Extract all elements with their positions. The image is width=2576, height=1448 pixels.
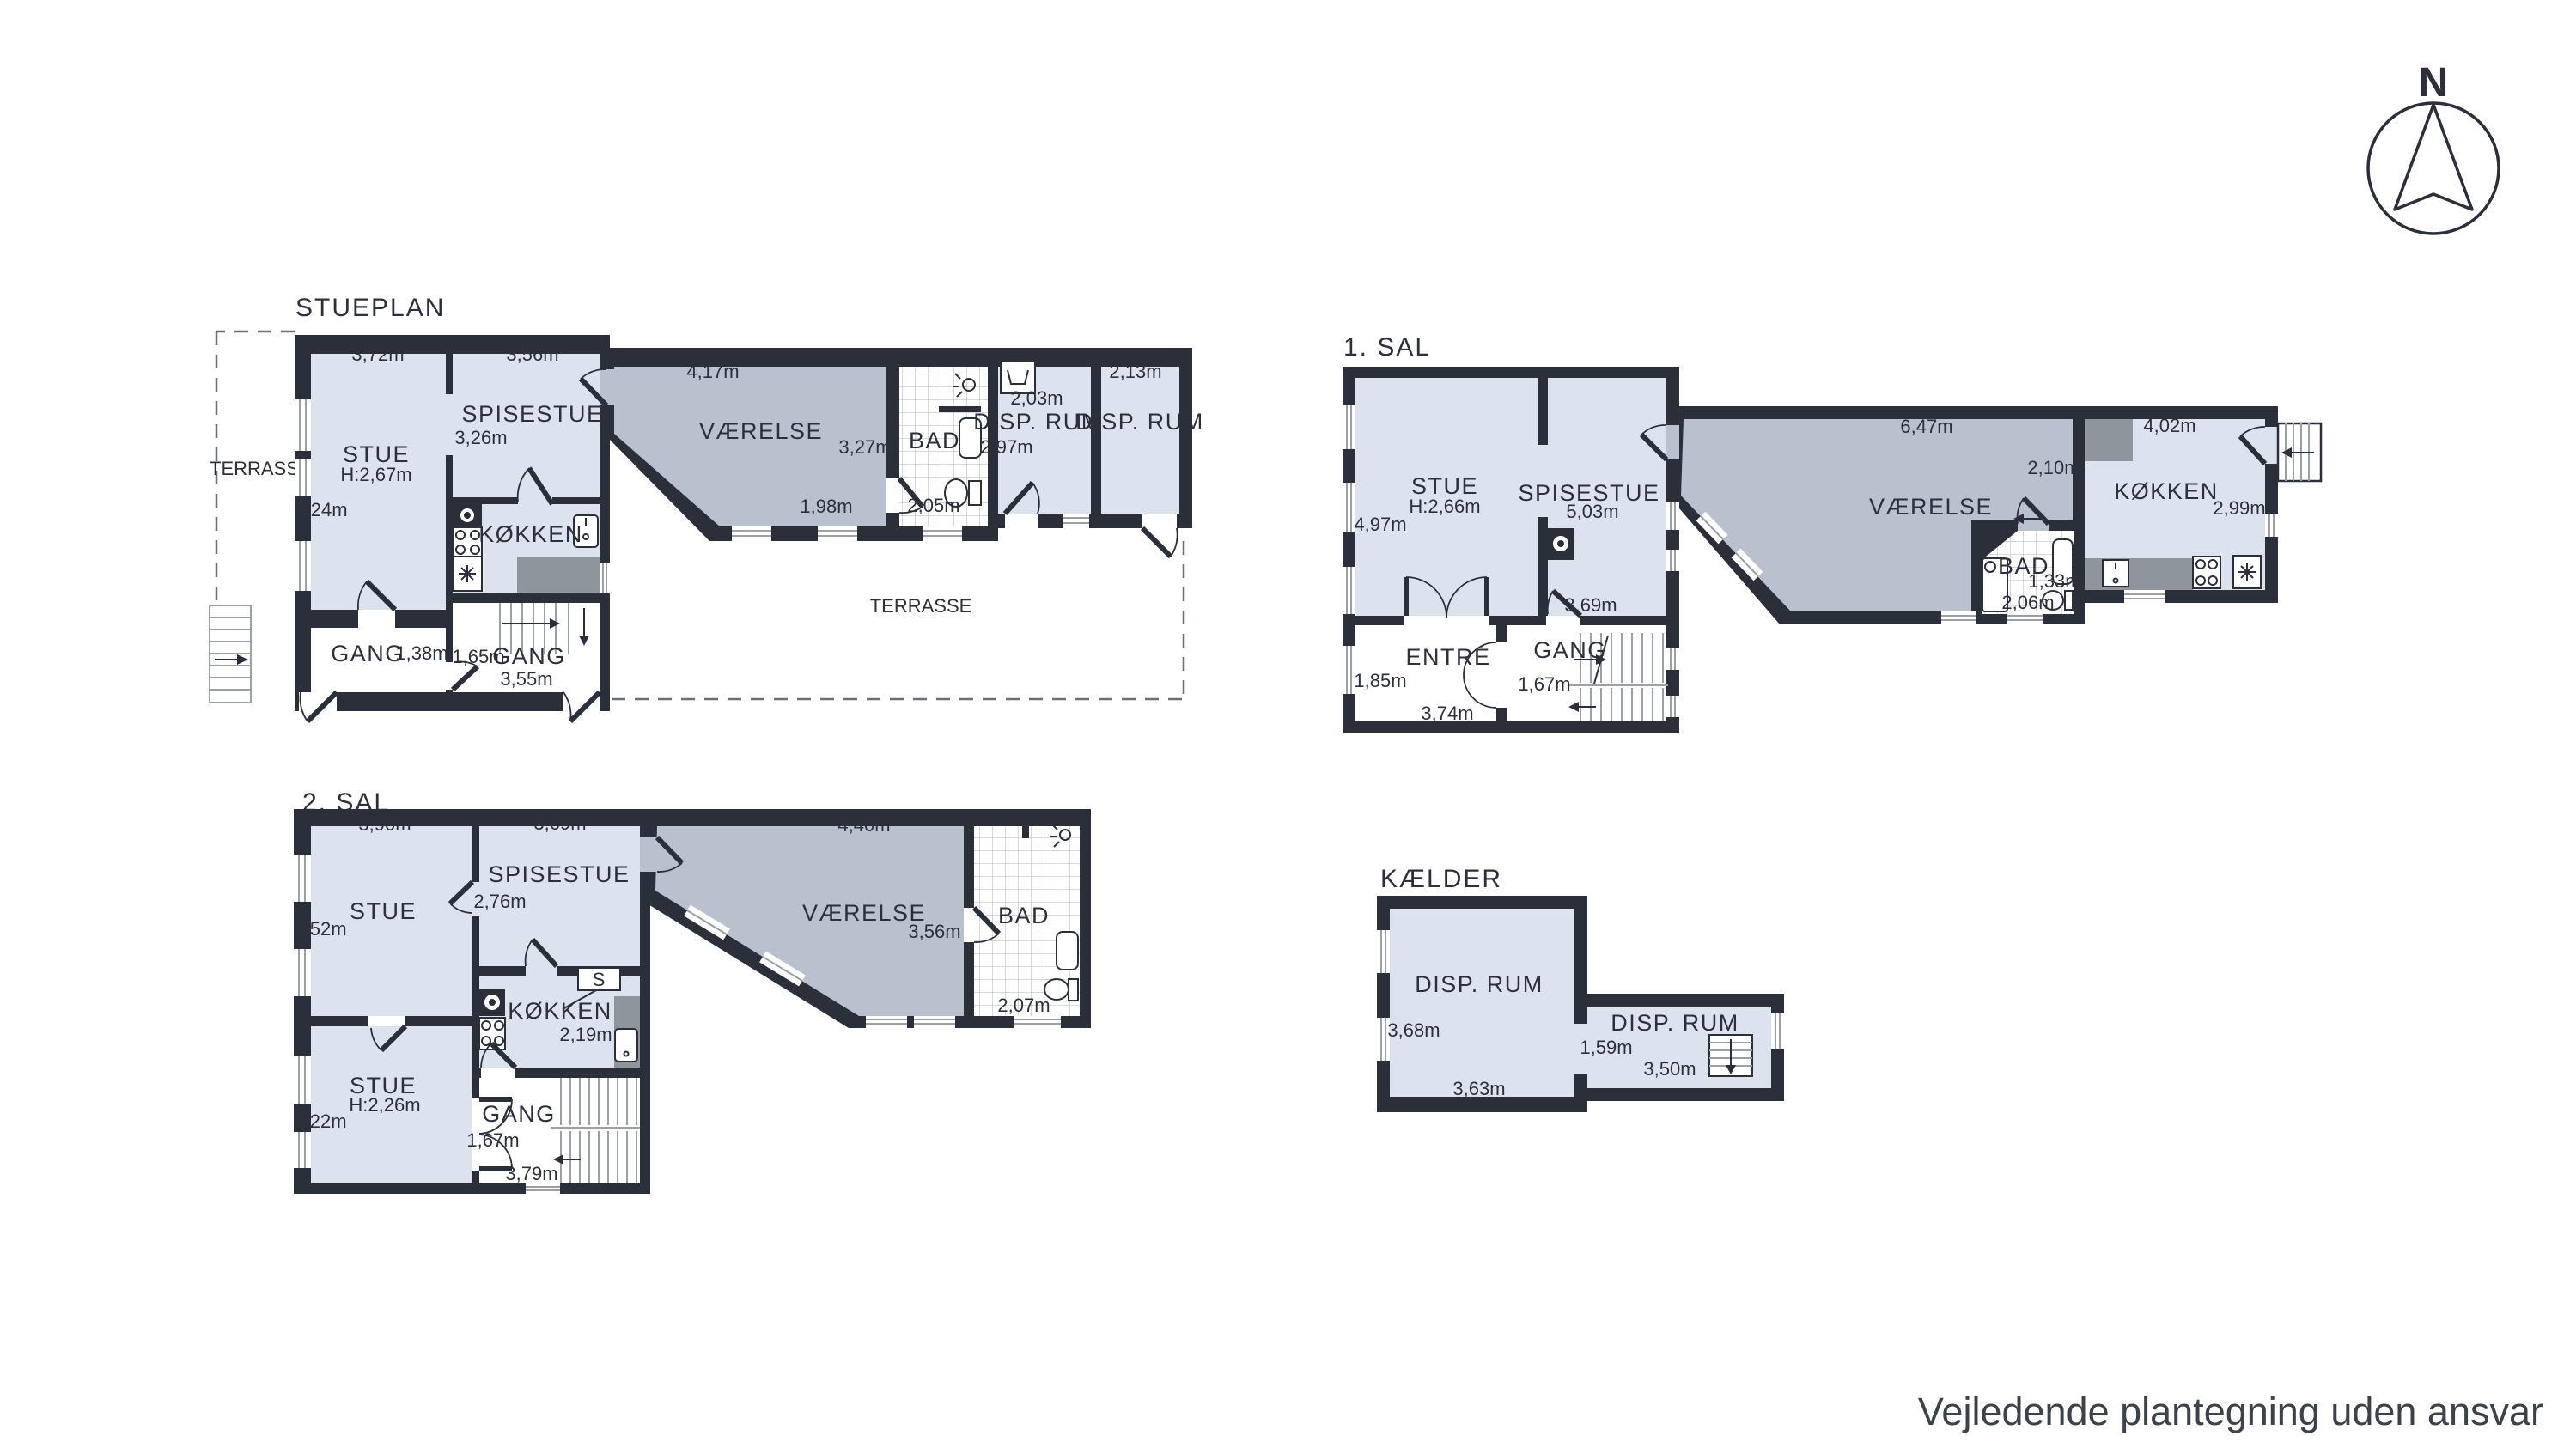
dim: 2,07m: [997, 995, 1050, 1016]
dim: 3,72m: [351, 344, 404, 365]
dim: 6,47m: [1900, 416, 1952, 437]
room-label-koekken: KØKKEN: [508, 998, 612, 1024]
dim: 1,67m: [1518, 673, 1570, 695]
dim: 2,03m: [1010, 387, 1063, 409]
stove-icon: [2193, 557, 2220, 588]
dim: 3,69m: [1564, 594, 1617, 616]
stueplan-title: STUEPLAN: [295, 294, 445, 322]
dim: 3,69m: [533, 812, 586, 834]
terrasse-boundary: [612, 541, 1184, 699]
floorplan-page: STUEPLAN TERRASSE: [0, 0, 2576, 1448]
dim: 3,55m: [500, 668, 552, 690]
room-label-gang: GANG: [482, 1101, 556, 1127]
ceiling-height: H:2,66m: [1409, 496, 1480, 517]
room-label-vaerelse: VÆRELSE: [699, 418, 823, 444]
room-label-spisestue: SPISESTUE: [488, 861, 630, 887]
dim: 4,02m: [2143, 415, 2195, 436]
room-label-disp-rum-2: DISP. RUM: [1075, 409, 1204, 435]
dim: 5,03m: [1566, 501, 1618, 522]
room-label-spisestue: SPISESTUE: [461, 401, 603, 427]
disclaimer-text: Vejledende plantegning uden ansvar: [1918, 1390, 2543, 1434]
north-compass: N: [2345, 47, 2534, 262]
exterior-stairs: [2278, 423, 2321, 481]
dim: 1,38m: [395, 642, 448, 664]
dim: 4,17m: [686, 361, 739, 382]
ceiling-height: H:2,67m: [340, 464, 411, 485]
dim: 4,97m: [1354, 514, 1406, 535]
dim: 5,24m: [295, 499, 347, 520]
dim: 3,56m: [908, 921, 960, 942]
dim: 2,99m: [2213, 497, 2265, 519]
kaelder-title: KÆLDER: [1380, 865, 1502, 893]
dim: 1,59m: [1580, 1037, 1632, 1058]
room-label-koekken: KØKKEN: [478, 521, 583, 547]
room-label-vaerelse: VÆRELSE: [1869, 494, 1993, 520]
stairs: [1709, 1035, 1752, 1076]
dim: 2,10m: [2027, 457, 2080, 478]
dim: 1,98m: [800, 496, 852, 517]
terrasse-bottom-label: TERRASSE: [870, 595, 972, 617]
dim: 2,05m: [907, 495, 959, 516]
room-label-koekken: KØKKEN: [2114, 478, 2219, 504]
dim: 3,22m: [294, 1110, 346, 1132]
dim: 3,52m: [294, 918, 346, 940]
dim: 3,56m: [506, 344, 558, 365]
dim: 3,79m: [505, 1163, 557, 1184]
dim: 2,19m: [559, 1024, 612, 1045]
fridge-icon: [453, 557, 482, 591]
dim: 3,63m: [1452, 1078, 1505, 1099]
room-disp-rum-1: [1390, 909, 1574, 1097]
kaelder-plan: KÆLDER DISP. RUM 3,68m 3,63m DISP. RUM 1…: [1366, 859, 1795, 1125]
stove-icon: [479, 989, 505, 1049]
room-disp-rum-2: [1101, 367, 1179, 528]
dim: 2,76m: [473, 891, 526, 912]
dim: 4,40m: [837, 814, 890, 836]
dim: 1,67m: [466, 1129, 519, 1151]
north-arrow-icon: [2368, 103, 2499, 234]
north-label: N: [2419, 60, 2449, 106]
sink-icon: [1057, 932, 1078, 970]
dim: 3,27m: [838, 436, 891, 458]
room-label-stue-top: STUE: [350, 898, 417, 924]
room-label-vaerelse: VÆRELSE: [802, 900, 926, 926]
dim: 2,13m: [1109, 361, 1161, 382]
room-label-disp-rum-1: DISP. RUM: [1415, 971, 1544, 997]
stueplan-plan: STUEPLAN TERRASSE: [198, 283, 1203, 721]
dim: 2,97m: [980, 436, 1032, 458]
room-label-gang-2: GANG: [492, 643, 566, 669]
dim: 3,26m: [454, 427, 507, 448]
sal1-title: 1. SAL: [1343, 333, 1431, 362]
room-label-bad: BAD: [998, 903, 1050, 928]
sal2-plan: 2. SAL: [283, 790, 1108, 1211]
kitchen-counter: [614, 996, 640, 1068]
room-label-bad: BAD: [909, 428, 960, 453]
dim: 3,50m: [1643, 1058, 1696, 1080]
stove-icon: [453, 504, 482, 557]
room-label-disp-rum-2: DISP. RUM: [1611, 1010, 1739, 1036]
cabinet-label: S: [593, 969, 606, 990]
fridge-icon: [2233, 556, 2261, 588]
ceiling-height: H:2,26m: [349, 1094, 420, 1116]
dim: 3,74m: [1421, 703, 1473, 724]
dim: 1,85m: [1354, 670, 1406, 691]
room-label-gang: GANG: [1533, 637, 1607, 663]
room-label-entre: ENTRÉ: [1405, 644, 1490, 670]
dim: 1,33m: [2028, 570, 2080, 592]
dim: 3,90m: [358, 813, 411, 835]
dim: 3,68m: [1387, 1019, 1440, 1041]
room-label-gang-1: GANG: [331, 641, 405, 666]
sal1-plan: 1. SAL: [1323, 331, 2341, 756]
dim: 2,06m: [2001, 592, 2054, 613]
